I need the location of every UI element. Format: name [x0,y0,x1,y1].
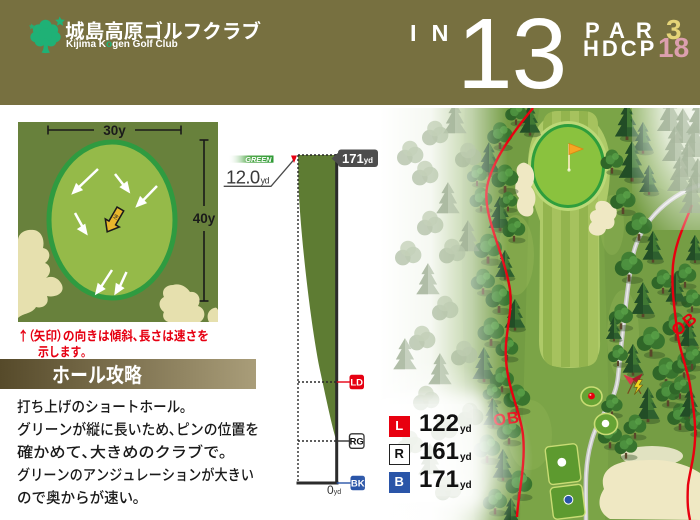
svg-text:RG: RG [350,436,364,447]
svg-text:30y: 30y [103,123,126,138]
svg-text:BK: BK [351,478,365,489]
svg-text:12.0yd: 12.0yd [226,167,270,188]
svg-text:GREEN: GREEN [245,155,272,164]
svg-text:LD: LD [350,377,363,388]
svg-text:40y: 40y [193,211,216,226]
svg-text:0yd: 0yd [327,483,341,497]
